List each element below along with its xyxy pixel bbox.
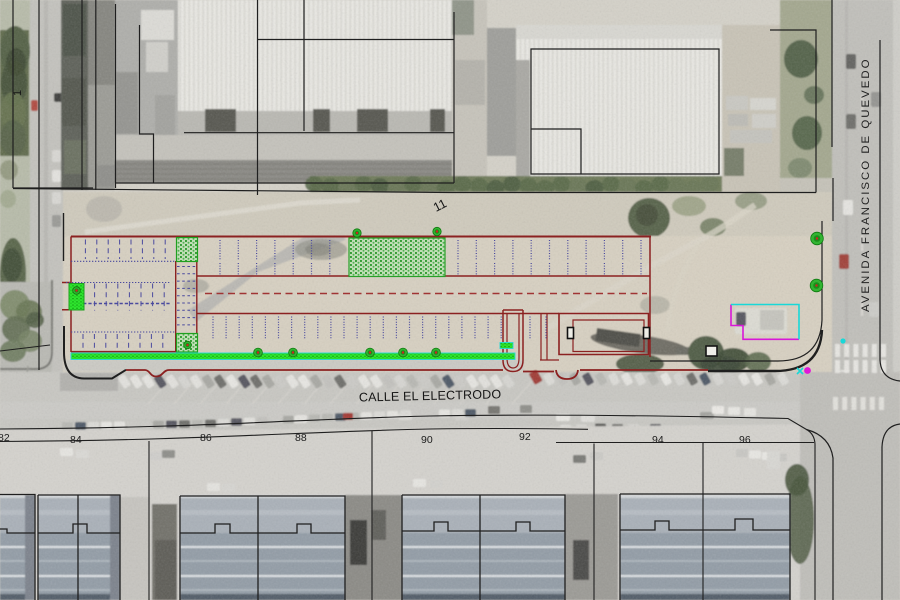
svg-text:86: 86 [200,432,212,444]
svg-text:96: 96 [739,434,751,446]
svg-text:88: 88 [295,432,307,444]
svg-text:84: 84 [70,434,82,446]
svg-text:82: 82 [0,432,10,444]
svg-text:92: 92 [519,431,531,443]
svg-text:90: 90 [421,434,433,446]
svg-text:AVENIDA FRANCISCO DE QUEVEDO: AVENIDA FRANCISCO DE QUEVEDO [860,59,872,312]
svg-text:94: 94 [652,434,664,446]
svg-text:1: 1 [12,90,24,96]
